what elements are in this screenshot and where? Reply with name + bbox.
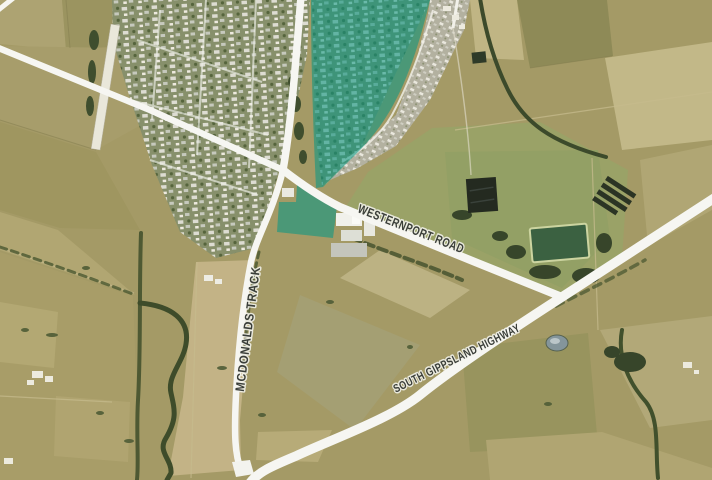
paddock-tree (407, 345, 413, 349)
satellite-map[interactable]: WESTERNPORT ROAD MCDONALDS TRACK SOUTH G… (0, 0, 712, 480)
building-pad (331, 243, 367, 257)
paddock-tree (96, 411, 104, 415)
aerial-map-svg: WESTERNPORT ROAD MCDONALDS TRACK SOUTH G… (0, 0, 712, 480)
building (694, 370, 699, 374)
field-patch (470, 0, 524, 60)
paddock-tree (46, 333, 58, 337)
field-patch (605, 42, 712, 150)
green-dam (530, 224, 590, 263)
paddock-tree (258, 413, 266, 417)
building (683, 362, 692, 368)
tree-clump (492, 231, 508, 241)
tree-clump (294, 122, 304, 140)
paddock-tree (21, 328, 29, 332)
tree-clump (506, 245, 526, 259)
paddock-tree (217, 366, 227, 370)
tree-clump (88, 60, 96, 84)
building (27, 380, 34, 385)
building (459, 25, 465, 29)
paddock-tree (82, 266, 90, 270)
small-dark-patch (472, 51, 487, 63)
building (341, 230, 362, 241)
building (204, 275, 213, 281)
building (282, 188, 294, 197)
tree-clump (604, 346, 620, 358)
building (443, 6, 451, 11)
building (215, 279, 222, 284)
dark-pond (466, 177, 498, 213)
treatment-pond-dark (466, 177, 498, 213)
paddock-tree (326, 300, 334, 304)
tree-clump (86, 96, 94, 116)
field-patch (54, 396, 130, 462)
tree-clump (89, 30, 99, 50)
building (32, 371, 43, 378)
building (452, 15, 459, 20)
paddock-tree (544, 402, 552, 406)
tree-clump (299, 150, 307, 164)
paddock-tree (124, 439, 134, 443)
lake-glint (550, 338, 560, 344)
tree-clump (529, 265, 561, 279)
field-patch (0, 0, 66, 50)
tree-clump (596, 233, 612, 253)
building (45, 376, 53, 382)
building (4, 458, 13, 464)
